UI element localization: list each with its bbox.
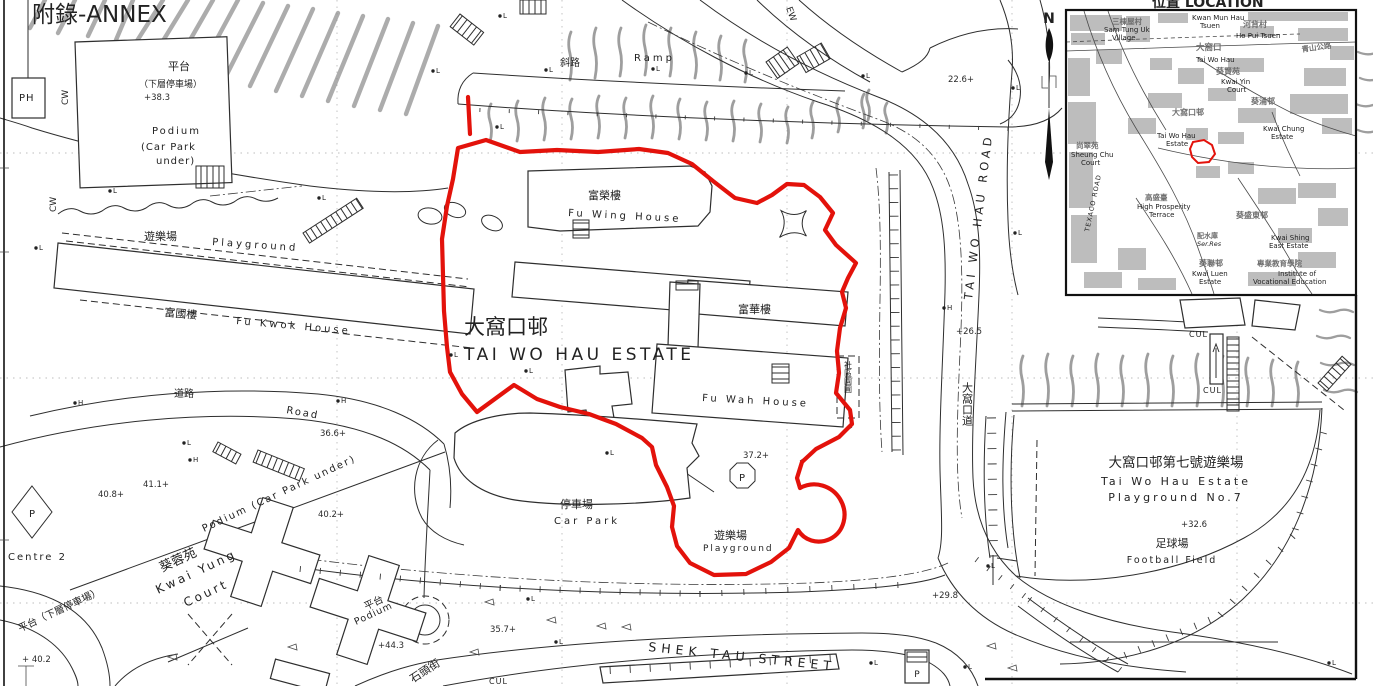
- lamp-post-dot: [34, 246, 37, 249]
- tree-icon: [1196, 354, 1199, 406]
- map-label: Tai Wo Hau: [1156, 132, 1196, 140]
- stall-tick: [300, 566, 301, 572]
- estate-name-en: TAI WO HAU ESTATE: [463, 345, 695, 365]
- inset-block: [1178, 68, 1204, 84]
- tree-icon: [744, 40, 747, 82]
- hydrant-dot: [942, 306, 945, 309]
- map-label: Kwai Chung: [1263, 125, 1304, 133]
- tree-icon: [1246, 358, 1249, 406]
- spot-22-6: 22.6+: [948, 75, 974, 85]
- tree-icon: [594, 28, 597, 78]
- spot-35-7: 35.7+: [490, 625, 516, 635]
- tai-wo-hau-road-en: TAI WO HAU ROAD: [961, 133, 995, 302]
- stall-tick: [1152, 640, 1155, 646]
- spot-40-8: 40.8+: [98, 490, 124, 500]
- map-label: Sam Tung Uk: [1104, 26, 1151, 34]
- marker-label: L: [991, 562, 995, 570]
- marker-label: L: [322, 194, 326, 202]
- map-label: Terrace: [1148, 211, 1174, 219]
- marker-label: L: [1016, 84, 1020, 92]
- podium-carpark-cjk: （下層停車場）: [139, 78, 202, 90]
- stall-tick: [480, 583, 481, 589]
- map-label: Kwai Shing: [1271, 234, 1309, 242]
- spot-29-8: +29.8: [932, 591, 958, 601]
- marker-label: L: [559, 638, 563, 646]
- map-label: Estate: [1271, 133, 1293, 141]
- map-label: Tsuen: [1199, 22, 1220, 30]
- centre-2: Centre 2: [8, 552, 67, 563]
- playground-upper-cjk: 遊樂場: [144, 229, 177, 243]
- map-label: Tai Wo Hau: [1195, 56, 1235, 64]
- stall-tick: [999, 575, 1003, 580]
- inset-block: [1238, 108, 1276, 123]
- ew-label: EW: [783, 6, 797, 23]
- tree-icon: [1071, 356, 1074, 406]
- marker-label: L: [529, 367, 533, 375]
- tree-icon: [759, 104, 762, 142]
- spot-40-2-a: 40.2+: [318, 510, 344, 520]
- map-svg: 附錄-ANNEX平台（下層停車場）+38.3Podium(Car Parkund…: [0, 0, 1373, 686]
- stall-tick: [1266, 560, 1271, 565]
- playground7-cjk: 大窩口邨第七號遊樂場: [1109, 454, 1244, 471]
- tree-icon: [837, 98, 840, 132]
- stall-tick: [1208, 617, 1211, 623]
- inset-block: [1318, 208, 1348, 226]
- marker-label: L: [1332, 659, 1336, 667]
- map-label: 大窩口邨: [1172, 107, 1204, 117]
- marker-label: L: [500, 123, 504, 131]
- estate-name-cjk: 大窩口邨: [464, 315, 548, 339]
- marker-label: L: [610, 449, 614, 457]
- map-label: Court: [1227, 86, 1246, 94]
- stall-tick: [420, 577, 421, 583]
- slope-streak: [354, 19, 388, 106]
- north-arrow: [1042, 28, 1056, 180]
- inset-block: [1068, 58, 1090, 96]
- tree-icon: [1317, 336, 1350, 339]
- lamp-post-dot: [498, 14, 501, 17]
- playground-upper-en: Playground: [212, 237, 299, 254]
- parking-octagon-label: P: [739, 473, 745, 484]
- marker-label: H: [193, 456, 198, 464]
- stall-tick: [1010, 584, 1014, 589]
- stall-tick: [1166, 635, 1169, 641]
- tree-icon: [678, 99, 681, 139]
- inset-block: [1298, 28, 1348, 41]
- tree-icon: [705, 102, 708, 140]
- inset-block: [1084, 272, 1122, 288]
- stall-tick: [1242, 586, 1247, 591]
- parking-diamond-label: P: [29, 509, 35, 520]
- slope-streak: [380, 23, 413, 110]
- hydrant-dot: [188, 458, 191, 461]
- map-label: 大窩口: [1196, 42, 1222, 53]
- stall-tick: [340, 570, 341, 576]
- inset-block: [1330, 46, 1354, 60]
- stall-tick: [1022, 593, 1026, 598]
- stall-tick: [1254, 573, 1259, 578]
- tree-icon: [1171, 356, 1174, 406]
- spot-41-1: 41.1+: [143, 480, 169, 490]
- lamp-post-dot: [986, 564, 989, 567]
- carpark-label-en: Car Park: [554, 516, 620, 527]
- football-field-cjk: 足球場: [1156, 536, 1189, 550]
- tree-icon: [651, 96, 654, 138]
- tree-icon: [570, 99, 573, 139]
- tree-icon: [569, 32, 572, 80]
- stall-tick: [1290, 534, 1295, 539]
- lamp-post-dot: [495, 125, 498, 128]
- podium-stairs: [196, 166, 224, 188]
- tree-icon: [1096, 354, 1099, 406]
- block-below-inset-1: [1180, 298, 1245, 328]
- tree-icon: [1360, 78, 1373, 81]
- lamp-post-dot: [869, 661, 872, 664]
- inset-block: [1148, 93, 1182, 108]
- tree-icon: [489, 104, 492, 142]
- stall-tick: [400, 576, 401, 582]
- cul-1: CUL: [489, 677, 508, 686]
- map-label: Ho Pui Tsuen: [1236, 32, 1280, 40]
- stall-tick: [1067, 627, 1071, 632]
- lamp-post-dot: [449, 353, 452, 356]
- tree-icon: [1320, 310, 1353, 313]
- lamp-post-dot: [182, 441, 185, 444]
- tree-icon: [1046, 354, 1049, 406]
- stall-tick: [975, 557, 979, 562]
- cw-label-2: CW: [49, 197, 59, 212]
- inset-block: [1118, 248, 1146, 270]
- map-label: Institute of: [1278, 270, 1317, 278]
- traffic-islands: [168, 599, 1017, 671]
- map-label: Ser.Res: [1197, 240, 1222, 248]
- carpark-label-cjk: 停車場: [560, 497, 593, 511]
- tree-icon: [1271, 360, 1274, 406]
- lamp-post-dot: [1011, 86, 1014, 89]
- marker-label: L: [436, 67, 440, 75]
- inset-block: [1218, 132, 1244, 144]
- map-label: Vocational Education: [1253, 278, 1326, 286]
- map-label: Kwai Yin: [1221, 78, 1250, 86]
- marker-label: L: [549, 66, 553, 74]
- tree-icon: [1146, 354, 1149, 406]
- marker-label: L: [39, 244, 43, 252]
- inset-block: [1258, 188, 1296, 204]
- fu-wah-house-cjk: 富華樓: [738, 302, 771, 316]
- map-label: 河背村: [1243, 19, 1267, 29]
- inset-block: [1138, 278, 1176, 290]
- hydrant-dot: [336, 399, 339, 402]
- podium-label-en: Podium: [152, 126, 201, 137]
- inset-block: [1228, 162, 1254, 174]
- stall-tick: [440, 579, 441, 585]
- stall-tick: [1320, 432, 1327, 434]
- playground-south-en: Playground: [703, 544, 774, 554]
- tree-icon: [862, 94, 865, 128]
- lamp-post-dot: [605, 451, 608, 454]
- parking-box-label: P: [914, 670, 920, 680]
- map-label: High Prosperity: [1137, 203, 1191, 211]
- fu-wah-connector: [668, 282, 700, 348]
- marker-label: H: [947, 304, 952, 312]
- inset-block: [1150, 58, 1172, 70]
- ramp-label-en: Ramp: [634, 53, 675, 64]
- tai-wo-hau-road-cjk: 大窩口道: [961, 381, 974, 426]
- map-label: 專業教育學院: [1257, 258, 1302, 268]
- tree-icon: [1356, 104, 1373, 107]
- tree-icon: [1121, 356, 1124, 406]
- inset-block: [1128, 118, 1156, 134]
- inset-block: [1068, 102, 1096, 144]
- stall-tick: [1138, 646, 1141, 652]
- spot-40-2-b: + 40.2: [22, 655, 51, 665]
- tree-icon: [597, 96, 600, 138]
- map-label: 配水庫: [1197, 231, 1218, 240]
- tree-icon: [1358, 130, 1373, 133]
- inset-block: [1298, 252, 1336, 268]
- marker-label: L: [968, 663, 972, 671]
- marker-label: L: [1018, 229, 1022, 237]
- stall-tick: [1311, 464, 1318, 466]
- marker-label: L: [187, 439, 191, 447]
- lamp-post-dot: [526, 597, 529, 600]
- tree-icon: [1358, 52, 1373, 55]
- spot-38-3: +38.3: [144, 93, 170, 103]
- tree-icon: [516, 101, 519, 141]
- stall-tick: [460, 581, 461, 587]
- tree-icon: [1021, 356, 1024, 406]
- map-label: 三棟屋村: [1112, 16, 1142, 26]
- spot-26-5: +26.5: [956, 327, 982, 337]
- inset-block: [1196, 166, 1220, 178]
- map-label: Sheung Chu: [1071, 151, 1114, 159]
- lamp-post-dot: [861, 74, 864, 77]
- map-label: East Estate: [1269, 242, 1308, 250]
- map-label: Kwai Luen: [1192, 270, 1228, 278]
- stall-tick: [1180, 629, 1183, 635]
- marker-label: L: [874, 659, 878, 667]
- stall-tick: [320, 568, 321, 574]
- fu-kwok-house-cjk: 富國樓: [164, 305, 198, 322]
- inset-block: [1071, 33, 1105, 45]
- lamp-post-dot: [554, 640, 557, 643]
- map-label: Court: [1081, 159, 1100, 167]
- map-label: 葵賢苑: [1215, 66, 1240, 76]
- hydrant-dot: [73, 401, 76, 404]
- stall-tick: [1092, 647, 1096, 652]
- lamp-post-dot: [1013, 231, 1016, 234]
- tree-icon: [811, 102, 814, 138]
- playground7-en1: Tai Wo Hau Estate: [1100, 475, 1251, 488]
- marker-label: H: [341, 397, 346, 405]
- map-label: Estate: [1166, 140, 1188, 148]
- inset-block: [1322, 118, 1352, 134]
- inset-map: 位置 LOCATIONKwan Mun HauTsuen三棟屋村Sam Tung…: [1066, 0, 1356, 295]
- map-label: 高盛臺: [1145, 192, 1168, 202]
- lamp-post-dot: [108, 189, 111, 192]
- spot-32-6: +32.6: [1181, 520, 1207, 530]
- inset-block: [1158, 13, 1188, 23]
- tree-icon: [719, 36, 722, 80]
- tree-icon: [694, 32, 697, 78]
- survey-map-annex: 附錄-ANNEX平台（下層停車場）+38.3Podium(Car Parkund…: [0, 0, 1373, 686]
- fountain-star: [767, 198, 819, 250]
- marker-label: H: [78, 399, 83, 407]
- podium-carpark-en1: (Car Park: [141, 142, 196, 153]
- ramp-label-cjk: 斜路: [560, 56, 580, 69]
- cul-3: CUL: [1203, 386, 1222, 395]
- stall-tick: [1079, 637, 1083, 642]
- map-label: Estate: [1199, 278, 1221, 286]
- stall-tick: [380, 574, 381, 580]
- tree-icon: [619, 28, 622, 76]
- cw-label-1: CW: [61, 90, 71, 105]
- playground7-en2: Playground No.7: [1108, 491, 1244, 504]
- annex-title: 附錄-ANNEX: [32, 2, 167, 28]
- playground-south-cjk: 遊樂場: [714, 528, 747, 542]
- map-label: 葵聯邨: [1198, 258, 1223, 268]
- lamp-post-dot: [1327, 661, 1330, 664]
- cul-2: CUL: [1189, 330, 1208, 339]
- fu-wing-house-cjk: 富榮樓: [588, 188, 621, 202]
- ph-label: PH: [19, 93, 35, 104]
- football-field-en: Football Field: [1127, 555, 1218, 566]
- podium-carpark-en2: under): [156, 156, 195, 167]
- parking-box-hatch: [907, 652, 927, 662]
- tree-icon: [1324, 390, 1357, 393]
- lamp-post-dot: [963, 665, 966, 668]
- spot-37-2: 37.2+: [743, 451, 769, 461]
- stall-tick: [1230, 599, 1235, 604]
- tree-icon: [543, 98, 546, 140]
- lamp-post-dot: [317, 196, 320, 199]
- lamp-post-dot: [524, 369, 527, 372]
- podium-building: [75, 37, 232, 188]
- tree-icon: [1296, 362, 1299, 406]
- marker-label: L: [113, 187, 117, 195]
- marker-label: L: [866, 72, 870, 80]
- north-label: N: [1043, 11, 1055, 27]
- tree-icon: [885, 103, 888, 133]
- tree-icon: [624, 98, 627, 138]
- marker-label: L: [749, 69, 753, 77]
- stall-tick: [1194, 623, 1197, 629]
- block-below-inset-2: [1252, 300, 1300, 330]
- spot-44-3: +44.3: [378, 641, 404, 651]
- stall-tick: [1315, 448, 1322, 450]
- tree-icon: [732, 101, 735, 141]
- shek-tau-street-cjk: 石頭街: [407, 656, 442, 686]
- spot-36-6: 36.6+: [320, 429, 346, 439]
- inset-block: [1304, 68, 1346, 86]
- map-label: 葵涌邨: [1250, 96, 1275, 106]
- stall-tick: [1218, 612, 1223, 617]
- marker-label: L: [656, 65, 660, 73]
- culvert-ladder: [1227, 337, 1239, 411]
- map-label: 尚翠苑: [1076, 140, 1099, 150]
- marker-label: L: [503, 12, 507, 20]
- lamp-post-dot: [744, 71, 747, 74]
- stall-tick: [1118, 667, 1122, 672]
- marker-label: L: [531, 595, 535, 603]
- inset-block: [1298, 183, 1336, 198]
- community-garden-cjk: 社區園圃: [844, 360, 853, 394]
- carpark-building: [454, 413, 699, 504]
- stall-tick: [360, 572, 361, 578]
- tree-icon: [786, 107, 789, 143]
- tree-icon: [669, 28, 672, 76]
- map-label: 葵盛東邨: [1235, 210, 1268, 220]
- tree-icon: [644, 25, 647, 75]
- inset-block: [1290, 94, 1348, 114]
- kwai-yung-tower-3: [270, 659, 329, 686]
- lamp-post-dot: [651, 67, 654, 70]
- podium-label-cjk: 平台: [168, 59, 190, 73]
- lamp-post-dot: [544, 68, 547, 71]
- road-label-cjk: 道路: [174, 387, 194, 400]
- lamp-post-dot: [431, 69, 434, 72]
- map-label: Village: [1112, 34, 1136, 42]
- marker-label: L: [454, 351, 458, 359]
- map-label: Kwan Mun Hau: [1192, 14, 1244, 22]
